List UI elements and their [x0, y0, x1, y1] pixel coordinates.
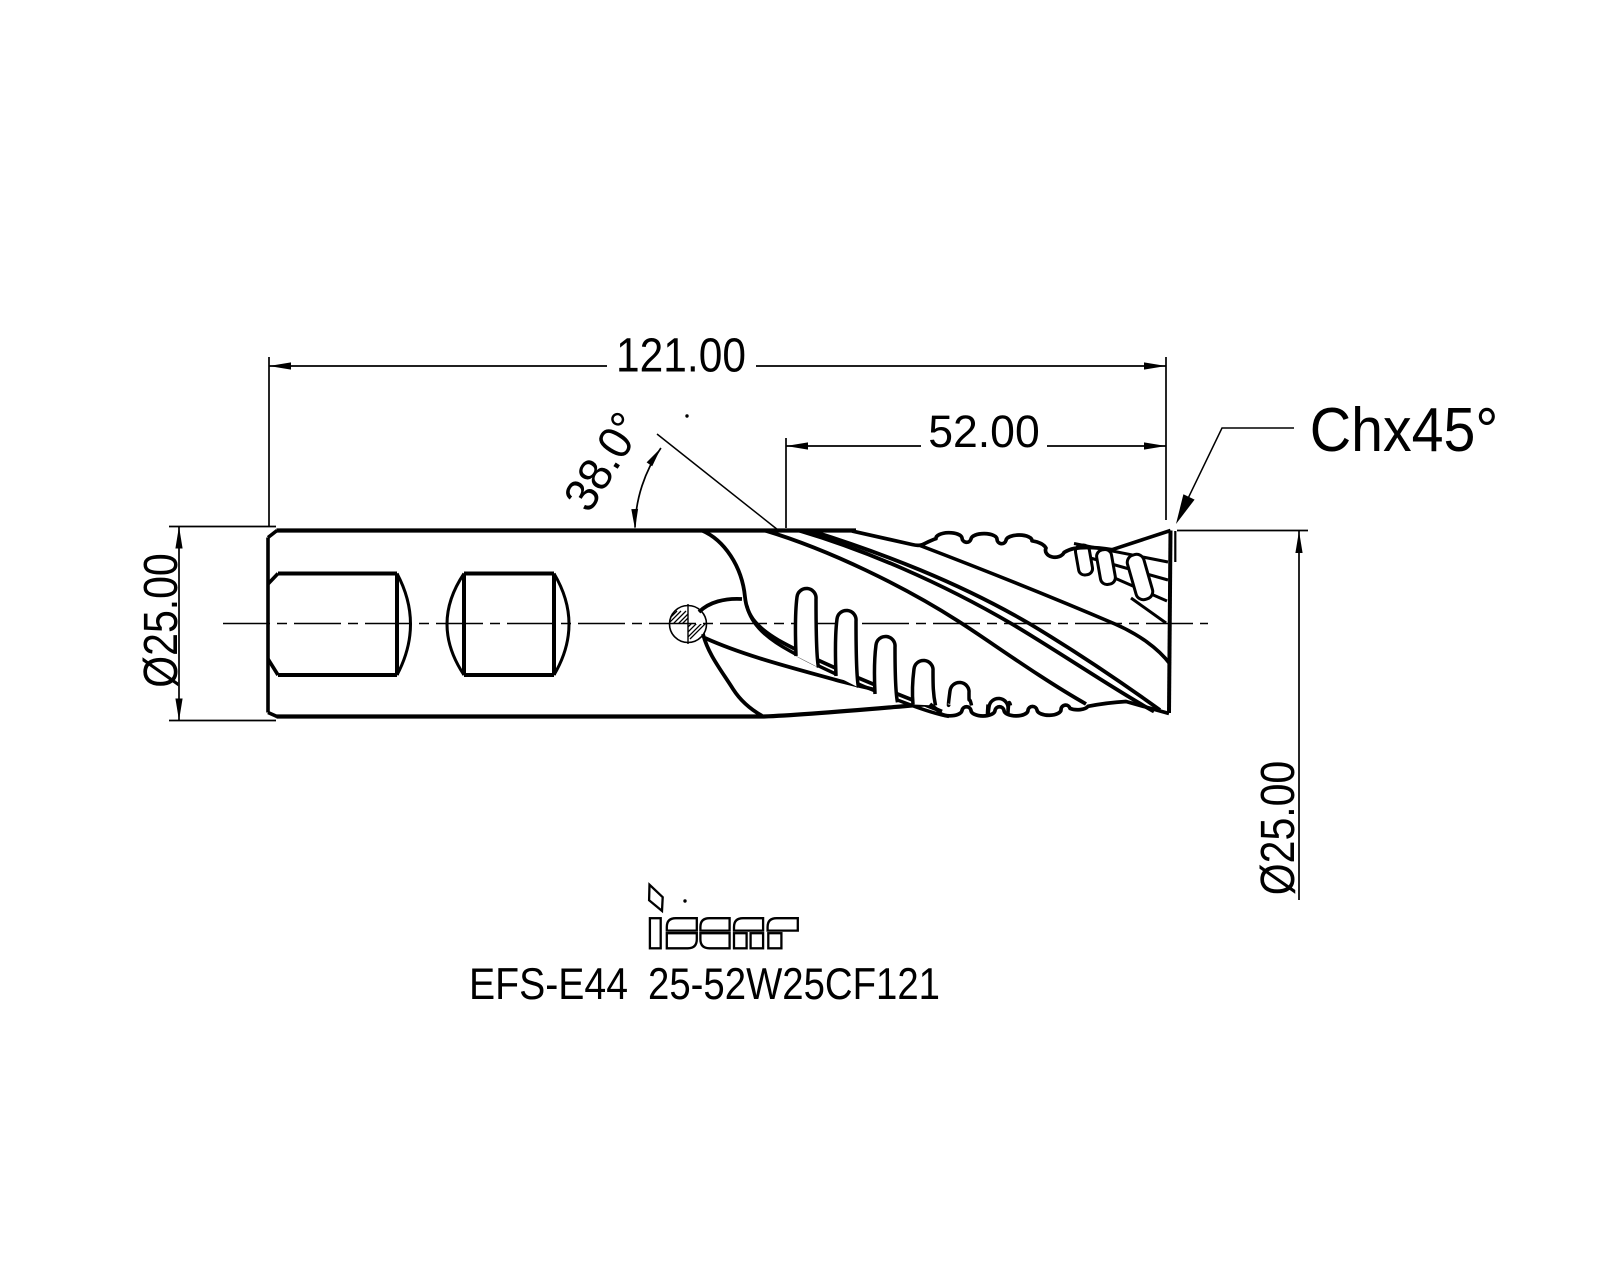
svg-text:Chx45°: Chx45°: [1310, 395, 1499, 465]
svg-text:25-52W25CF121: 25-52W25CF121: [648, 958, 940, 1008]
svg-text:52.00: 52.00: [928, 407, 1039, 457]
svg-text:121.00: 121.00: [616, 328, 746, 382]
svg-text:Ø25.00: Ø25.00: [135, 553, 188, 687]
svg-text:Ø25.00: Ø25.00: [1252, 761, 1305, 895]
svg-text:EFS-E44: EFS-E44: [469, 959, 628, 1009]
